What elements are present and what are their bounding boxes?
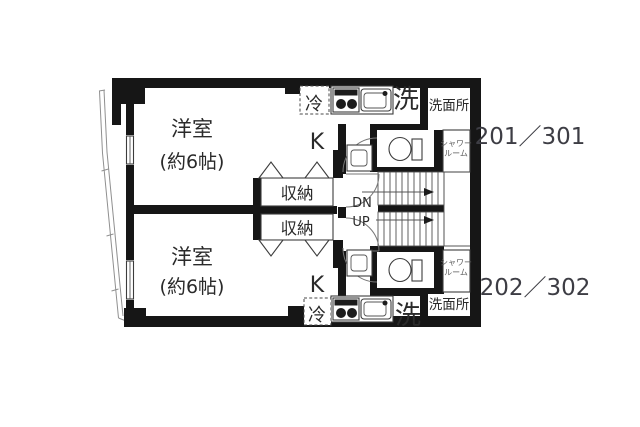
washroom-label: 洗面所 bbox=[429, 297, 470, 313]
wall-hall-middle bbox=[338, 207, 346, 218]
wall-stair-mid bbox=[378, 205, 444, 212]
closet-door-triangle bbox=[305, 162, 329, 178]
kitchen-counter-bottom bbox=[331, 296, 393, 322]
fridge-label: 冷 bbox=[308, 305, 326, 326]
room-size-label: (約6帖) bbox=[160, 151, 225, 173]
stairs-dn-label: DN bbox=[352, 196, 372, 211]
room-size-label: (約6帖) bbox=[160, 276, 225, 298]
wall-closet-left bbox=[253, 178, 261, 240]
stair-treads-lower bbox=[384, 212, 438, 246]
unit-number-label: 202／302 bbox=[480, 275, 591, 301]
toilet-icon-bottom bbox=[389, 259, 422, 282]
laundry-label: 洗 bbox=[395, 301, 421, 331]
wall-bottom bbox=[124, 316, 481, 327]
storage-label: 収納 bbox=[281, 219, 314, 238]
kitchen-counter-top bbox=[331, 86, 393, 114]
closet-door-triangle bbox=[259, 162, 283, 178]
basin-cabinet-bottom bbox=[347, 250, 372, 276]
wall-corner-bottom-left bbox=[124, 308, 146, 316]
room-label: 洋室 bbox=[171, 245, 213, 269]
kitchen-label: K bbox=[310, 130, 325, 155]
closet-door-triangle bbox=[305, 240, 329, 256]
stairs-dn-arrow bbox=[362, 188, 434, 196]
wall-hall-upper bbox=[338, 124, 346, 174]
basin-cabinet-top bbox=[347, 145, 372, 171]
laundry-label: 洗 bbox=[393, 85, 419, 115]
room-label: 洋室 bbox=[171, 117, 213, 141]
shower-room-label: シャワー bbox=[440, 139, 472, 148]
stairs-up-label: UP bbox=[352, 215, 370, 230]
unit-number-label: 201／301 bbox=[475, 124, 586, 150]
toilet-icon-top bbox=[389, 138, 422, 161]
storage-label: 収納 bbox=[281, 184, 314, 203]
wall-closet-divider bbox=[261, 206, 337, 214]
faucet-icon bbox=[383, 301, 388, 306]
stair-treads-upper bbox=[384, 172, 438, 205]
stairs-up-arrow bbox=[376, 216, 434, 224]
wall-room-divider bbox=[134, 205, 253, 214]
washroom-label: 洗面所 bbox=[429, 98, 470, 114]
wall-washroom-top bbox=[420, 88, 428, 130]
fridge-label: 冷 bbox=[305, 94, 323, 115]
closet-door-triangle bbox=[259, 240, 283, 256]
shower-room-label: シャワー bbox=[440, 258, 472, 267]
floorplan-page: 洋室 (約6帖) K 冷 洗 洗面所 シャワー ルーム 収納 201／301 洋… bbox=[0, 0, 640, 427]
kitchen-label: K bbox=[310, 273, 325, 298]
shower-room-label: ルーム bbox=[444, 149, 468, 158]
shower-room-label: ルーム bbox=[444, 268, 468, 277]
faucet-icon bbox=[383, 91, 388, 96]
floor-plan: 洋室 (約6帖) K 冷 洗 洗面所 シャワー ルーム 収納 201／301 洋… bbox=[0, 0, 640, 427]
wall-left-middle bbox=[126, 165, 134, 260]
wall-washroom-bottom bbox=[420, 294, 428, 316]
